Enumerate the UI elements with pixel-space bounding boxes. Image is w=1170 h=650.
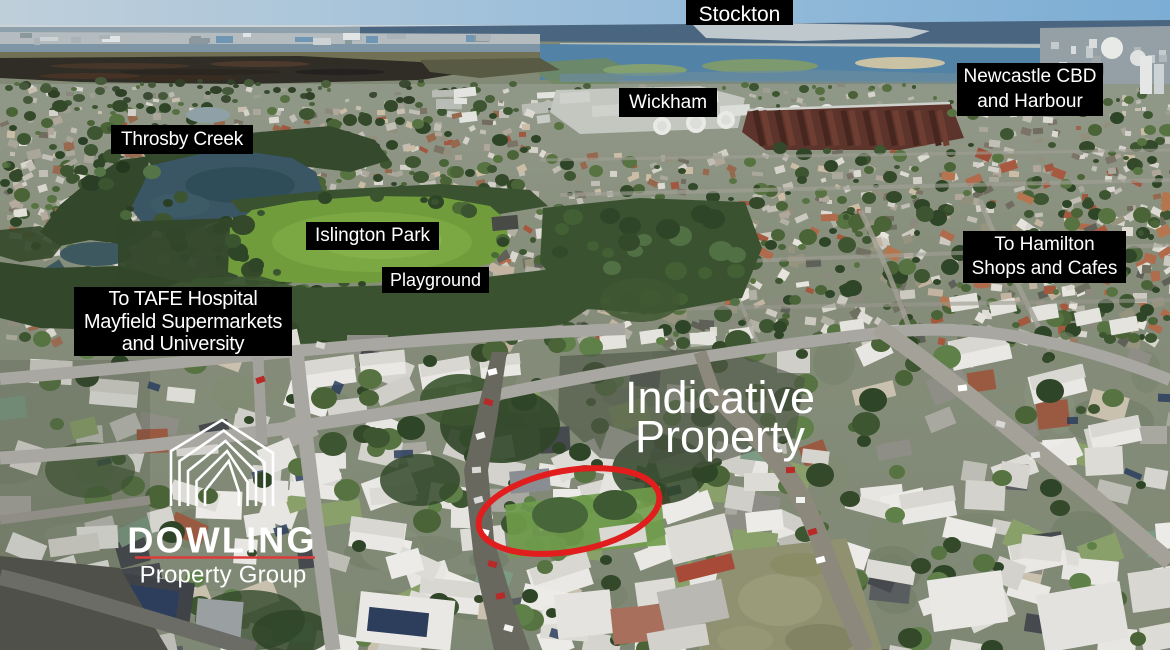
svg-text:DOWLING: DOWLING — [127, 520, 316, 561]
svg-text:Property Group: Property Group — [140, 562, 307, 589]
